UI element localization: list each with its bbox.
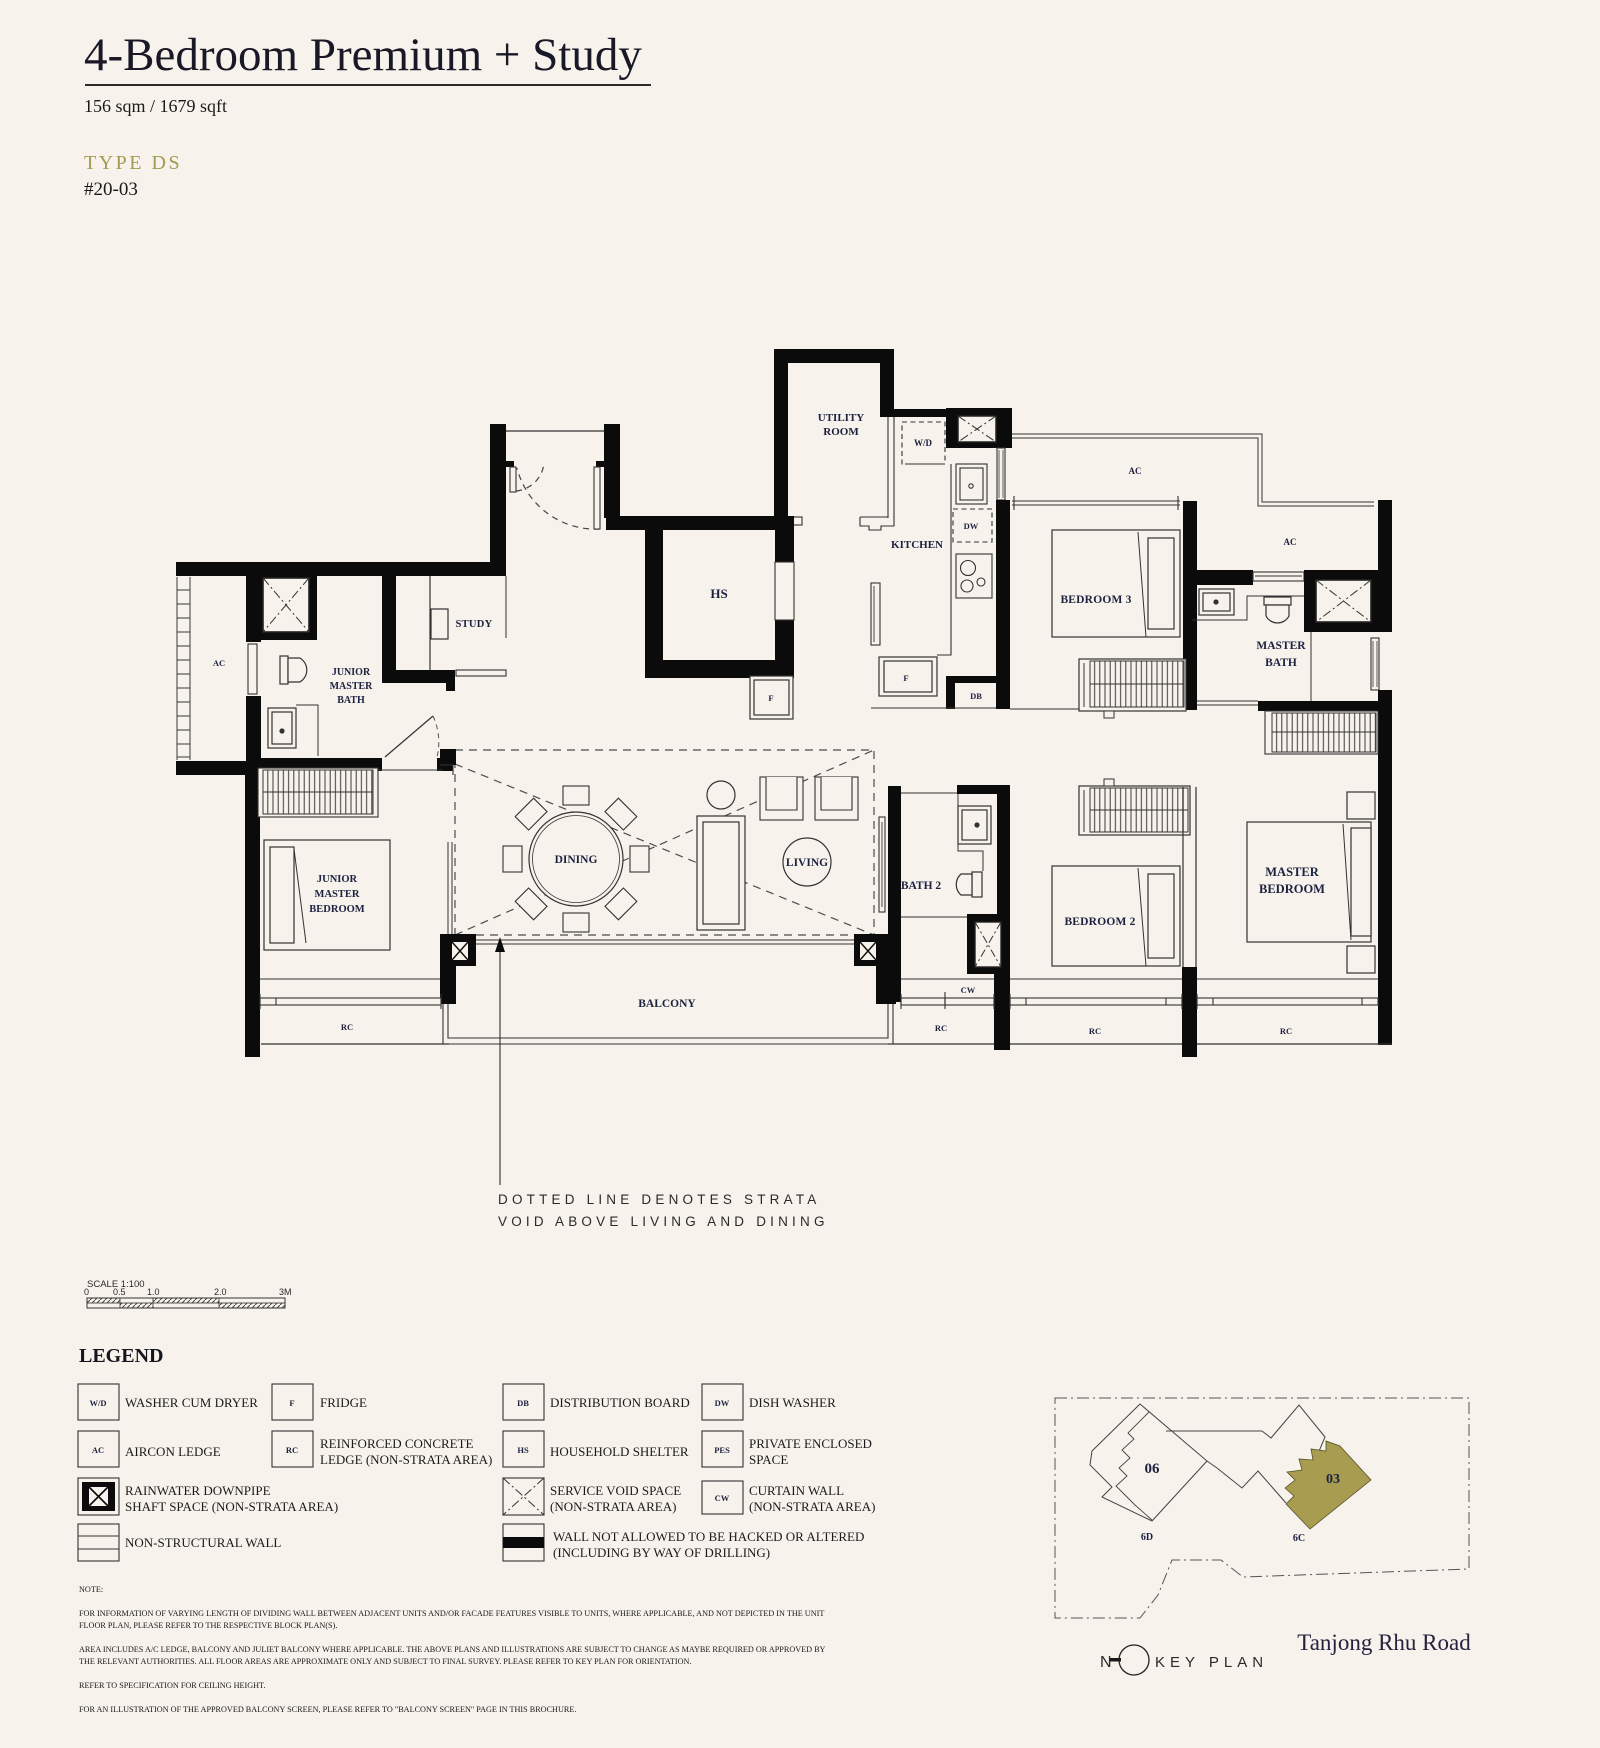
svg-text:N: N (1100, 1654, 1112, 1671)
svg-text:156 sqm / 1679 sqft: 156 sqm / 1679 sqft (84, 96, 227, 116)
svg-text:JUNIOR: JUNIOR (317, 874, 358, 885)
svg-text:PES: PES (714, 1445, 730, 1455)
svg-text:W/D: W/D (90, 1398, 107, 1408)
svg-text:BEDROOM 2: BEDROOM 2 (1064, 916, 1135, 928)
svg-text:VOID ABOVE LIVING AND DINING: VOID ABOVE LIVING AND DINING (498, 1214, 829, 1229)
svg-text:TYPE DS: TYPE DS (84, 152, 182, 174)
svg-text:RC: RC (286, 1445, 298, 1455)
svg-text:RC: RC (341, 1022, 353, 1032)
svg-text:AC: AC (213, 658, 225, 668)
svg-text:RC: RC (935, 1023, 947, 1033)
svg-text:BATH: BATH (1265, 657, 1297, 669)
svg-text:DINING: DINING (555, 854, 598, 866)
svg-text:AREA INCLUDES A/C LEDGE, BALCO: AREA INCLUDES A/C LEDGE, BALCONY AND JUL… (79, 1645, 826, 1654)
svg-text:DW: DW (964, 521, 979, 531)
svg-text:CW: CW (961, 985, 976, 995)
svg-text:THE RELEVANT AUTHORITIES. ALL: THE RELEVANT AUTHORITIES. ALL FLOOR AREA… (79, 1657, 692, 1666)
svg-text:SHAFT SPACE (NON-STRATA AREA): SHAFT SPACE (NON-STRATA AREA) (125, 1499, 338, 1514)
svg-text:STUDY: STUDY (455, 619, 492, 630)
svg-text:RAINWATER DOWNPIPE: RAINWATER DOWNPIPE (125, 1483, 271, 1498)
svg-text:MASTER: MASTER (315, 889, 360, 900)
svg-text:AC: AC (1129, 466, 1142, 476)
svg-text:BATH 2: BATH 2 (901, 880, 942, 892)
svg-text:CURTAIN WALL: CURTAIN WALL (749, 1483, 844, 1498)
svg-text:MASTER: MASTER (1265, 865, 1319, 879)
svg-text:DW: DW (715, 1398, 730, 1408)
svg-text:CW: CW (715, 1493, 730, 1503)
svg-text:BEDROOM: BEDROOM (1259, 882, 1325, 896)
svg-text:HS: HS (517, 1445, 529, 1455)
svg-text:F: F (289, 1398, 294, 1408)
svg-text:NOTE:: NOTE: (79, 1585, 103, 1594)
svg-text:03: 03 (1326, 1472, 1340, 1487)
svg-text:(NON-STRATA AREA): (NON-STRATA AREA) (749, 1499, 875, 1514)
svg-text:WASHER CUM DRYER: WASHER CUM DRYER (125, 1395, 258, 1410)
svg-text:DB: DB (970, 691, 982, 701)
svg-text:WALL NOT ALLOWED TO BE HACKED: WALL NOT ALLOWED TO BE HACKED OR ALTERED (553, 1529, 864, 1544)
svg-text:W/D: W/D (914, 438, 933, 448)
svg-text:#20-03: #20-03 (84, 179, 138, 200)
svg-text:FRIDGE: FRIDGE (320, 1395, 367, 1410)
svg-text:REFER TO SPECIFICATION FOR CEI: REFER TO SPECIFICATION FOR CEILING HEIGH… (79, 1681, 266, 1690)
svg-text:AC: AC (92, 1445, 104, 1455)
svg-text:UTILITY: UTILITY (818, 412, 865, 424)
svg-text:FLOOR PLAN, PLEASE REFER TO TH: FLOOR PLAN, PLEASE REFER TO THE RESPECTI… (79, 1621, 337, 1630)
svg-text:6C: 6C (1293, 1533, 1305, 1544)
svg-text:KEY PLAN: KEY PLAN (1155, 1654, 1268, 1671)
svg-text:AIRCON LEDGE: AIRCON LEDGE (125, 1444, 221, 1459)
svg-text:BALCONY: BALCONY (638, 998, 696, 1010)
svg-text:6D: 6D (1141, 1532, 1153, 1543)
svg-text:0: 0 (84, 1287, 89, 1297)
svg-text:3M: 3M (279, 1287, 292, 1297)
svg-text:06: 06 (1145, 1461, 1161, 1477)
svg-text:MASTER: MASTER (1256, 640, 1306, 652)
svg-text:AC: AC (1284, 537, 1297, 547)
svg-text:LEDGE (NON-STRATA AREA): LEDGE (NON-STRATA AREA) (320, 1452, 492, 1467)
svg-text:DISTRIBUTION BOARD: DISTRIBUTION BOARD (550, 1395, 690, 1410)
svg-text:DB: DB (517, 1398, 529, 1408)
svg-text:FOR INFORMATION OF VARYING LEN: FOR INFORMATION OF VARYING LENGTH OF DIV… (79, 1609, 824, 1618)
svg-text:RC: RC (1089, 1026, 1101, 1036)
svg-text:SPACE: SPACE (749, 1452, 788, 1467)
svg-text:HOUSEHOLD SHELTER: HOUSEHOLD SHELTER (550, 1444, 689, 1459)
svg-text:F: F (903, 673, 908, 683)
svg-text:SERVICE VOID SPACE: SERVICE VOID SPACE (550, 1483, 681, 1498)
svg-text:LIVING: LIVING (786, 857, 828, 869)
svg-text:LEGEND: LEGEND (79, 1345, 163, 1367)
svg-text:1.0: 1.0 (147, 1287, 160, 1297)
svg-text:RC: RC (1280, 1026, 1292, 1036)
svg-text:BEDROOM 3: BEDROOM 3 (1060, 594, 1131, 606)
svg-text:FOR AN ILLUSTRATION OF THE APP: FOR AN ILLUSTRATION OF THE APPROVED BALC… (79, 1705, 576, 1714)
svg-text:REINFORCED CONCRETE: REINFORCED CONCRETE (320, 1436, 474, 1451)
svg-text:(INCLUDING BY WAY OF DRILLING): (INCLUDING BY WAY OF DRILLING) (553, 1545, 770, 1560)
svg-text:DISH WASHER: DISH WASHER (749, 1395, 836, 1410)
svg-text:ROOM: ROOM (823, 426, 859, 438)
svg-text:(NON-STRATA AREA): (NON-STRATA AREA) (550, 1499, 676, 1514)
svg-text:PRIVATE ENCLOSED: PRIVATE ENCLOSED (749, 1436, 872, 1451)
svg-text:MASTER: MASTER (330, 681, 374, 692)
svg-text:BATH: BATH (337, 695, 365, 706)
svg-text:0.5: 0.5 (113, 1287, 126, 1297)
svg-text:KITCHEN: KITCHEN (891, 539, 943, 551)
svg-text:HS: HS (710, 586, 727, 601)
svg-text:F: F (768, 693, 773, 703)
svg-text:2.0: 2.0 (214, 1287, 227, 1297)
svg-text:Tanjong Rhu Road: Tanjong Rhu Road (1297, 1630, 1471, 1655)
svg-text:NON-STRUCTURAL WALL: NON-STRUCTURAL WALL (125, 1535, 281, 1550)
svg-text:4-Bedroom Premium + Study: 4-Bedroom Premium + Study (84, 29, 642, 81)
svg-text:BEDROOM: BEDROOM (309, 904, 365, 915)
svg-text:DOTTED LINE DENOTES STRATA: DOTTED LINE DENOTES STRATA (498, 1192, 820, 1207)
svg-text:JUNIOR: JUNIOR (332, 667, 371, 678)
